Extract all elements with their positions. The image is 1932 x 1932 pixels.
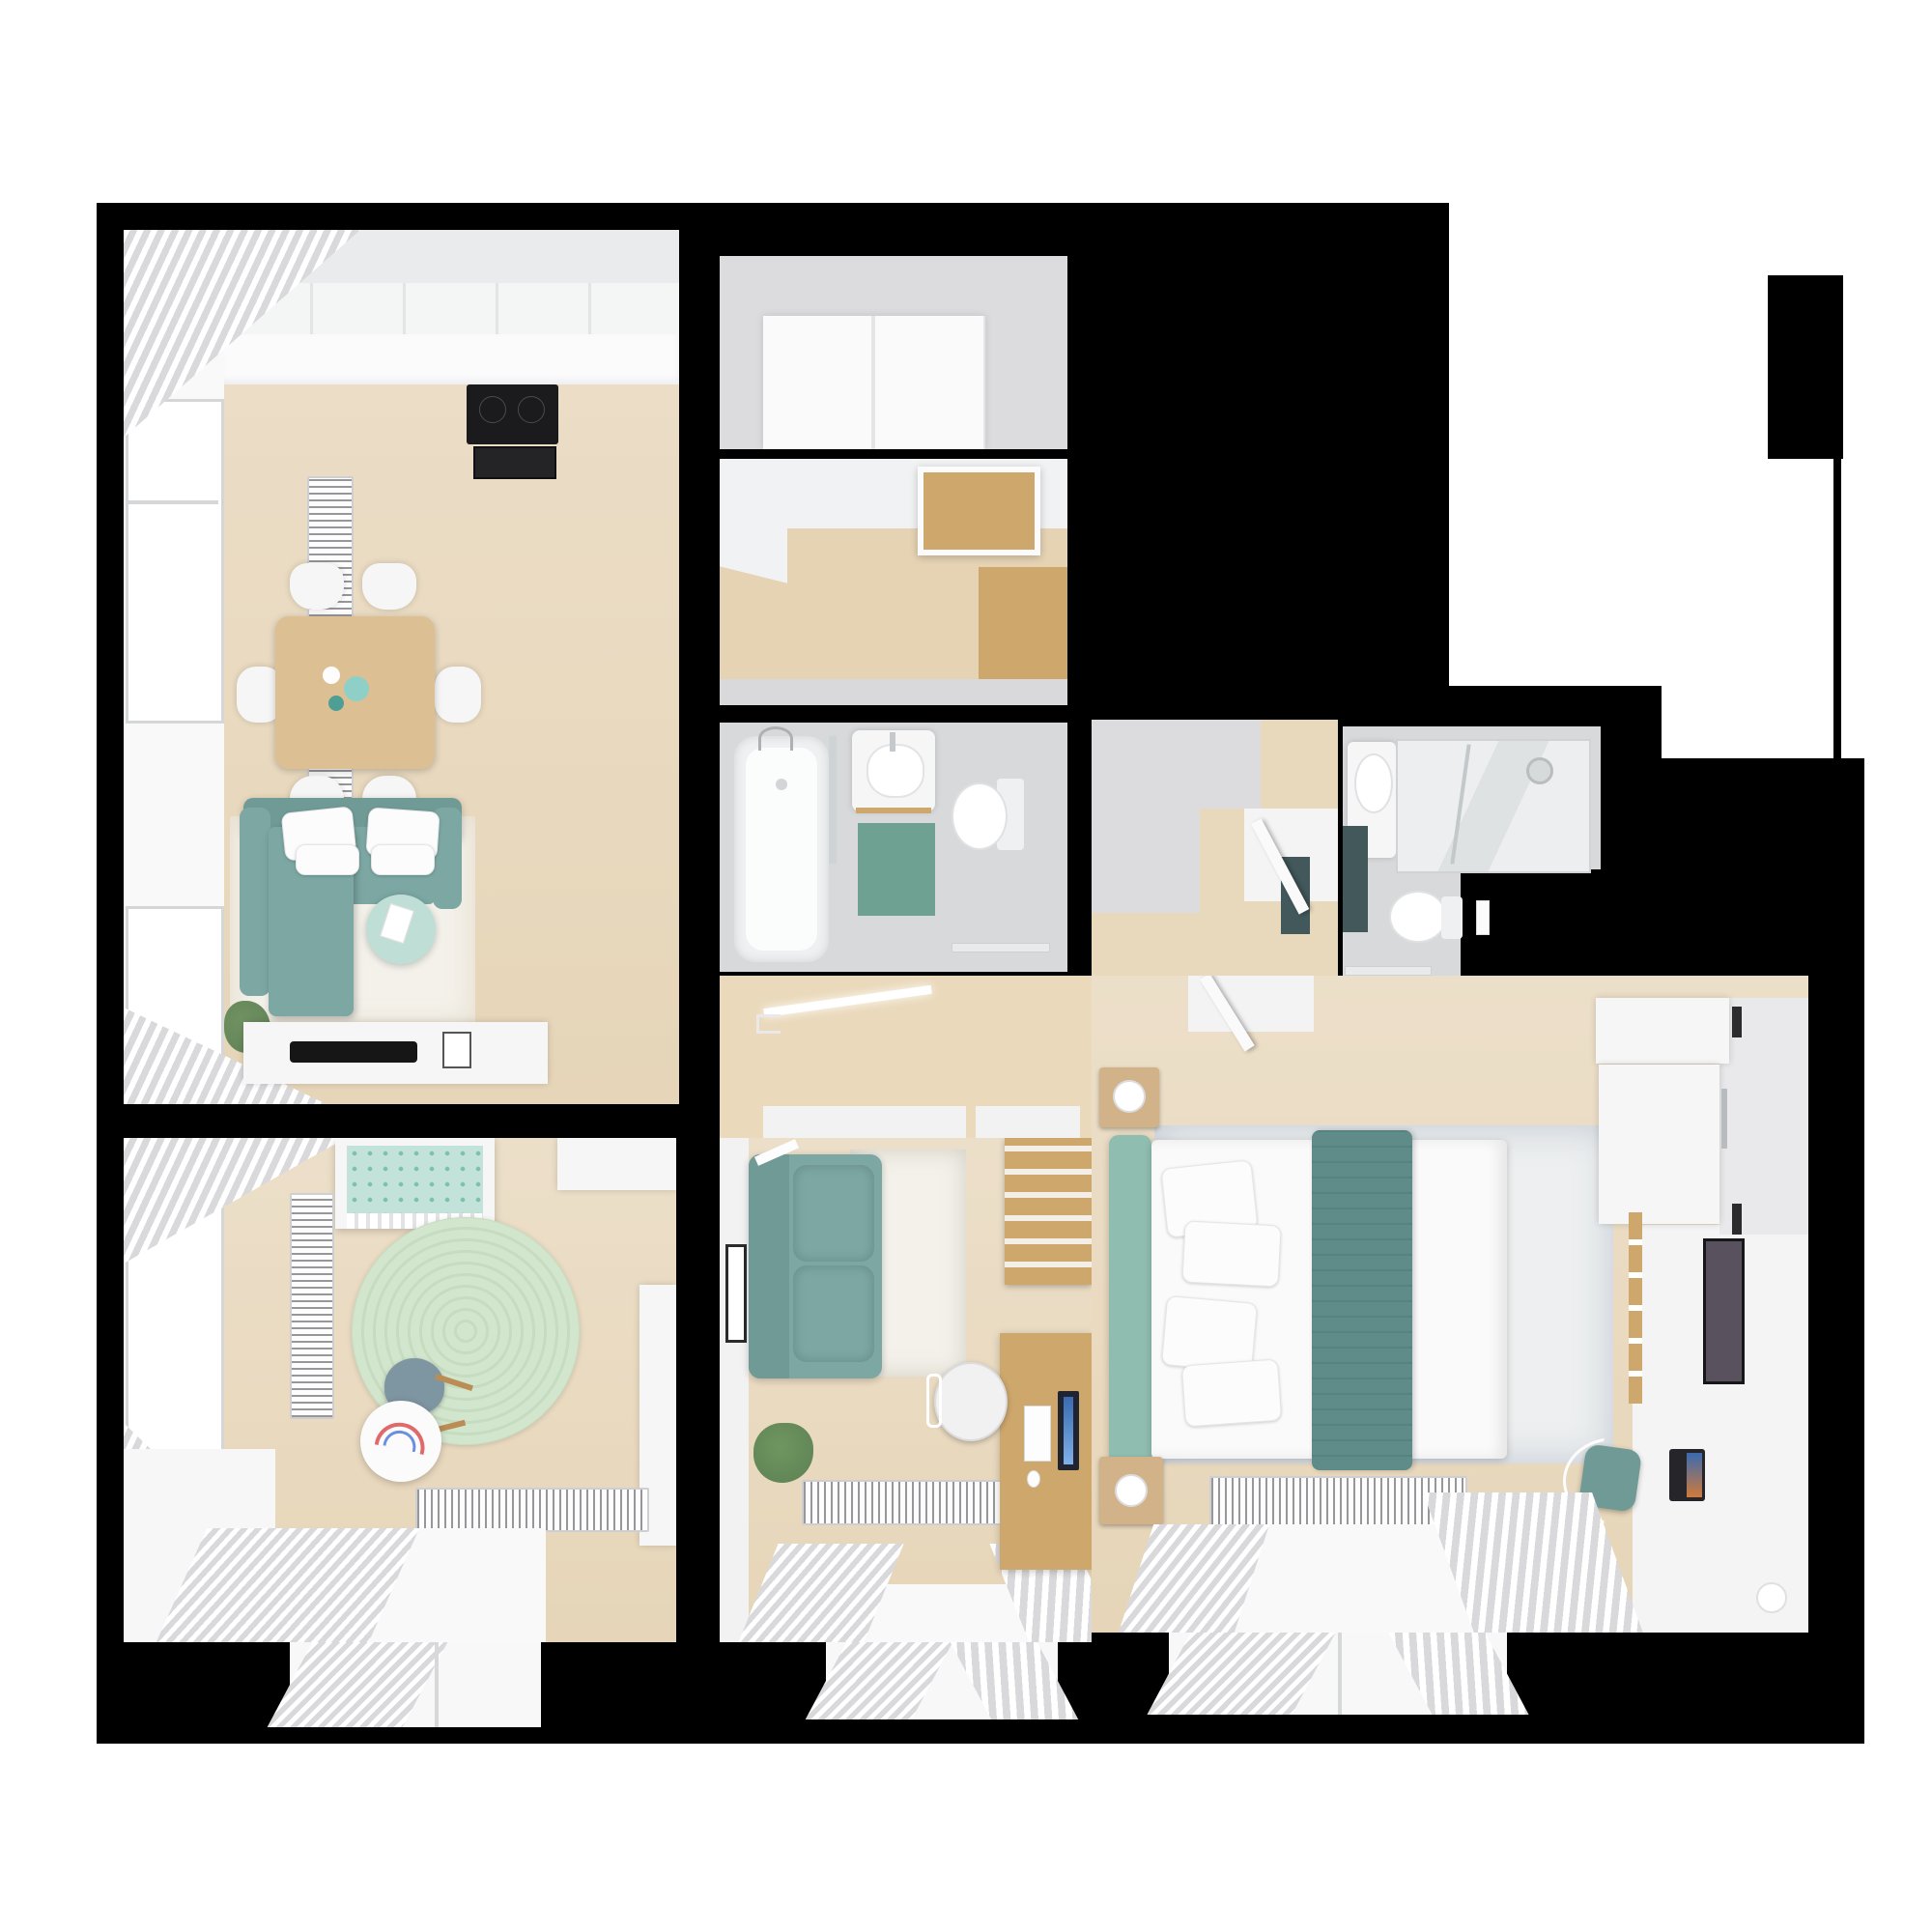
- room-bedroom: [1092, 976, 1808, 1633]
- wardrobe-handle-metal: [1721, 1089, 1727, 1149]
- threshold-white: [976, 1106, 1080, 1138]
- floor-plan: [0, 0, 1932, 1932]
- hob-burner-icon: [518, 396, 545, 423]
- dining-chair: [362, 563, 416, 610]
- wood-shelf-strip: [1629, 1212, 1642, 1404]
- shower-glass-enclosure: [1396, 739, 1591, 873]
- bath-mat-teal: [858, 823, 935, 916]
- loveseat-cushion: [793, 1165, 874, 1262]
- threshold-white: [763, 1106, 966, 1138]
- entry-wall-top: [1092, 720, 1261, 809]
- bedside-lamp-icon: [1115, 1474, 1148, 1507]
- hob-burner-icon: [479, 396, 506, 423]
- curtain-below-kids: [268, 1642, 448, 1727]
- room-utility: [720, 459, 1067, 705]
- ceiling-light-bar: [763, 985, 932, 1017]
- dark-mat2: [1343, 826, 1368, 932]
- curtain-below-bedroom: [1147, 1633, 1335, 1715]
- toilet2-tank: [1441, 896, 1463, 939]
- floor-lamp-icon: [1756, 1582, 1787, 1613]
- sink2-basin: [1354, 753, 1393, 813]
- bed-pillow: [1181, 1220, 1281, 1287]
- utility-floor-strip: [720, 679, 1067, 705]
- wardrobe-handle-dark: [1732, 1007, 1742, 1037]
- sink-tap-icon: [890, 732, 895, 752]
- wardrobe-white: [763, 316, 985, 449]
- utility-cabinet-corner: [979, 567, 1067, 691]
- glass-divider: [829, 736, 837, 864]
- window-below-office: [826, 1642, 1058, 1719]
- wardrobe-door-bottom: [1599, 1065, 1719, 1224]
- office-chair-arm-icon: [926, 1374, 942, 1428]
- vanity-wood-edge: [856, 808, 931, 813]
- laptop-screen: [1687, 1453, 1702, 1497]
- window-frame-line: [1338, 1633, 1342, 1715]
- window-below-kids: [290, 1642, 541, 1727]
- kitchen-counter: [220, 334, 679, 384]
- bed-pillow: [1181, 1359, 1282, 1428]
- sideboard-frame-photo: [442, 1032, 471, 1068]
- monitor-screen: [1064, 1397, 1073, 1464]
- plant-office: [753, 1423, 813, 1483]
- utility-cabinet-top: [918, 467, 1040, 555]
- towel-rail2: [1345, 966, 1432, 976]
- bedside-lamp-icon: [1113, 1080, 1146, 1113]
- wall-line-right: [1833, 275, 1841, 768]
- wall-step-top: [1193, 213, 1304, 261]
- table-decor-plate: [323, 667, 340, 684]
- shower-head-icon: [1526, 757, 1553, 784]
- flush-plate: [1476, 900, 1490, 935]
- sofa-armrest-left: [240, 808, 270, 996]
- table-decor-bowl: [344, 676, 369, 701]
- sofa-pillow: [296, 844, 359, 875]
- room-office: [720, 1138, 1092, 1642]
- window-below-bedroom: [1169, 1633, 1507, 1715]
- room-bathroom-main: [720, 723, 1067, 972]
- crib-mattress-mint-dotted: [347, 1146, 483, 1213]
- entry-wall-left: [1092, 809, 1200, 913]
- room-kids: [124, 1138, 676, 1642]
- dining-chair: [290, 563, 344, 610]
- window-mullion: [126, 500, 218, 504]
- loveseat-cushion: [793, 1265, 874, 1362]
- bath-faucet-icon: [758, 726, 793, 751]
- mouse: [1027, 1470, 1040, 1488]
- curtain-below-office: [806, 1642, 953, 1719]
- kids-dresser: [557, 1138, 676, 1190]
- ladder-shelf-wood: [1005, 1138, 1092, 1285]
- window-living-top: [126, 399, 224, 724]
- window-frame-line: [435, 1642, 439, 1727]
- sink-basin: [867, 744, 924, 798]
- table-decor-cup: [328, 696, 344, 711]
- bed-headboard-mint: [1109, 1135, 1151, 1463]
- sofa-pillow: [371, 844, 435, 875]
- room-corridor: [720, 976, 1092, 1138]
- wall-notch-top-right: [1768, 275, 1843, 459]
- wardrobe-handle-dark: [1732, 1204, 1742, 1235]
- wardrobe-door-top: [1596, 998, 1729, 1064]
- room-storage: [720, 256, 1067, 449]
- toilet-bowl: [952, 782, 1008, 850]
- oven: [473, 446, 556, 479]
- radiator-kids-vertical: [290, 1193, 334, 1419]
- office-wall-left: [720, 1138, 749, 1642]
- bed-blanket-teal: [1312, 1130, 1412, 1470]
- dining-chair: [435, 667, 481, 723]
- tv-tray-black: [290, 1041, 417, 1063]
- room-living-dining-kitchen: [124, 230, 679, 1104]
- room-bathroom-second: [1343, 726, 1601, 980]
- keyboard: [1024, 1406, 1051, 1462]
- office-chair: [934, 1362, 1008, 1441]
- picture-frame: [725, 1244, 747, 1343]
- bathtub-drain: [776, 779, 787, 790]
- wall-tv-dark: [1703, 1238, 1745, 1384]
- light-bracket-icon: [756, 1014, 781, 1034]
- toilet2-bowl: [1389, 891, 1447, 943]
- radiator-kids-horizontal: [415, 1488, 649, 1532]
- towel-rail: [952, 943, 1050, 952]
- loveseat-back: [749, 1154, 789, 1378]
